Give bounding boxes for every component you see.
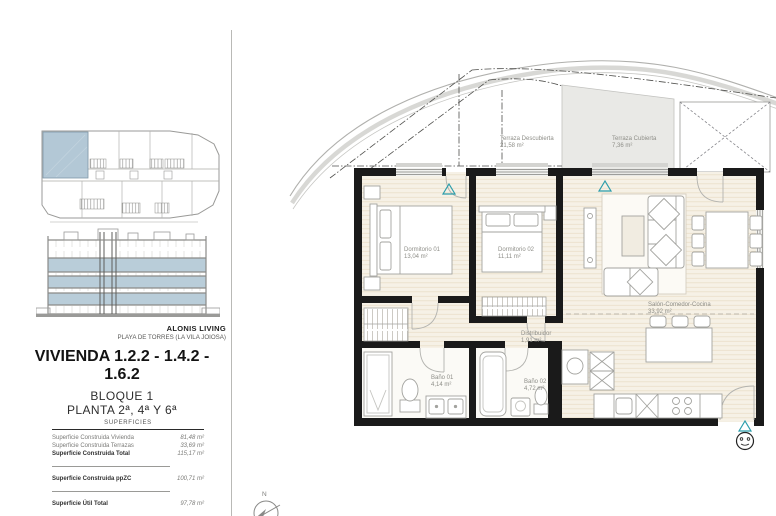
room-label-bano1: Baño 01 4,14 m² [431, 375, 453, 389]
room-name: Distribuidor [521, 331, 551, 338]
room-label-terraza-descubierta: Terraza Descubierta 21,58 m² [500, 136, 554, 150]
room-label-terraza-cubierta: Terraza Cubierta 7,36 m² [612, 136, 656, 150]
room-name: Terraza Cubierta [612, 136, 656, 143]
room-label-bano2: Baño 02 4,72 m² [524, 379, 546, 393]
room-label-salon: Salón-Comedor-Cocina 33,92 m² [648, 302, 711, 316]
window-sills [396, 163, 668, 167]
room-area: 4,72 m² [524, 386, 546, 393]
room-area: 11,11 m² [498, 254, 534, 261]
room-name: Dormitorio 02 [498, 247, 534, 254]
room-name: Baño 02 [524, 379, 546, 386]
room-area: 4,14 m² [431, 382, 453, 389]
room-name: Dormitorio 01 [404, 247, 440, 254]
room-area: 13,04 m² [404, 254, 440, 261]
room-area: 1,91 m² [521, 338, 551, 345]
room-name: Terraza Descubierta [500, 136, 554, 143]
crossed-area [680, 102, 770, 172]
room-area: 21,58 m² [500, 143, 554, 150]
compass-icon [252, 501, 280, 516]
room-area: 33,92 m² [648, 309, 711, 316]
room-area: 7,36 m² [612, 143, 656, 150]
entrance-symbol [737, 433, 754, 450]
terraza-cubierta-area [562, 85, 674, 172]
plan-sheet: ALONIS LIVING PLAYA DE TORRES (LA VILA J… [0, 0, 776, 516]
room-label-distribuidor: Distribuidor 1,91 m² [521, 331, 551, 345]
compass-north-label: N [262, 491, 267, 498]
room-label-dormitorio1: Dormitorio 01 13,04 m² [404, 247, 440, 261]
room-label-dormitorio2: Dormitorio 02 11,11 m² [498, 247, 534, 261]
room-name: Baño 01 [431, 375, 453, 382]
floor-plan [0, 0, 776, 516]
room-name: Salón-Comedor-Cocina [648, 302, 711, 309]
